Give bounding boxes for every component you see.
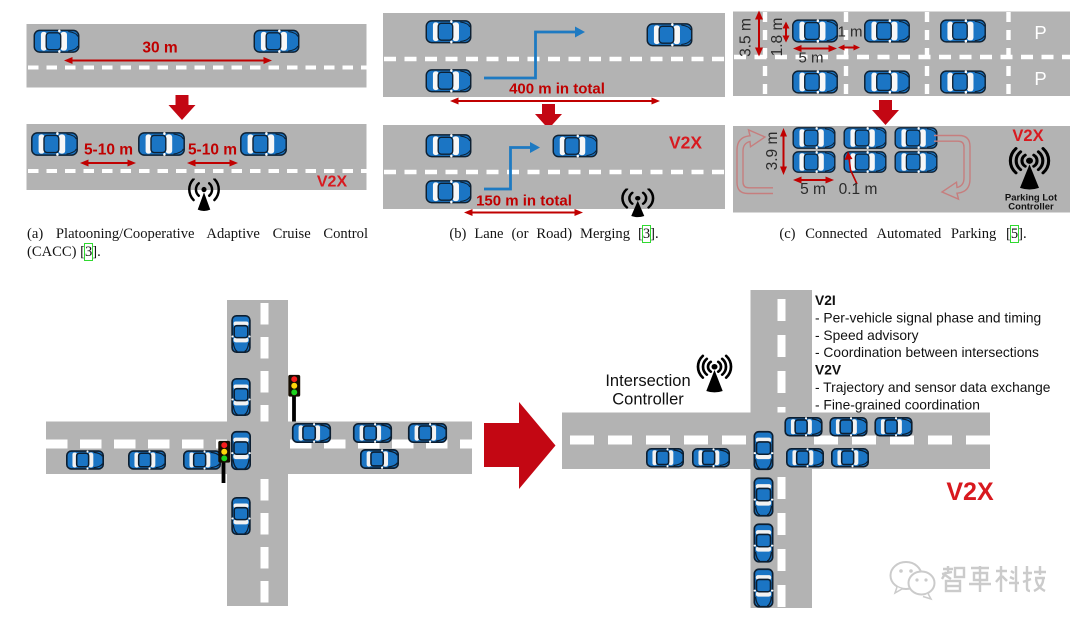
svg-text:3.9 m: 3.9 m (764, 132, 781, 171)
svg-text:30 m: 30 m (142, 40, 177, 57)
svg-text:Controller: Controller (612, 391, 684, 409)
svg-text:5 m: 5 m (800, 181, 826, 198)
svg-text:3.5 m: 3.5 m (738, 18, 755, 57)
svg-text:V2X: V2X (1012, 127, 1043, 145)
svg-text:V2X: V2X (317, 174, 348, 191)
svg-text:1.8 m: 1.8 m (769, 18, 786, 57)
svg-text:Controller: Controller (1008, 202, 1054, 213)
svg-text:0.1 m: 0.1 m (839, 181, 878, 198)
svg-text:5 m: 5 m (798, 50, 823, 67)
svg-text:1 m: 1 m (837, 24, 862, 41)
svg-text:400 m in total: 400 m in total (509, 81, 605, 98)
svg-text:Intersection: Intersection (605, 372, 690, 390)
svg-text:P: P (1034, 68, 1046, 89)
svg-text:5-10 m: 5-10 m (188, 142, 237, 159)
svg-text:5-10 m: 5-10 m (84, 142, 133, 159)
svg-text:V2I - Per-vehicle signal phase: V2I - Per-vehicle signal phase and timin… (815, 293, 1054, 412)
svg-text:150 m in total: 150 m in total (476, 193, 572, 210)
svg-text:V2X: V2X (669, 133, 702, 153)
svg-text:P: P (1034, 22, 1046, 43)
svg-text:V2X: V2X (946, 478, 994, 506)
